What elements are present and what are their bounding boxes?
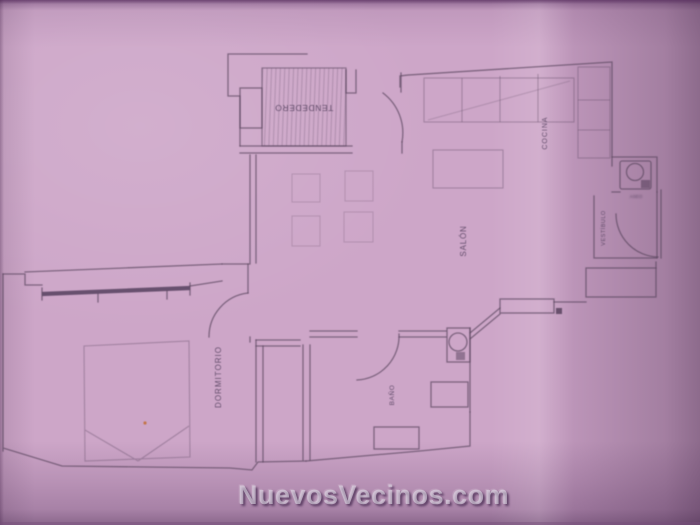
room-label-salon: SALÓN (459, 225, 468, 256)
room-label-aseo: ASEO (630, 194, 643, 199)
door-arc-icon (383, 93, 403, 142)
radiator-icon (500, 299, 554, 313)
room-tendedero: TENDEDERO (228, 54, 403, 153)
room-label-tendedero: TENDEDERO (275, 103, 334, 113)
window-icon (42, 288, 190, 294)
watermark: NuevosVecinos.com (238, 480, 498, 511)
room-aseo: ASEO (612, 157, 661, 258)
corridor (256, 340, 263, 462)
sink-icon (431, 382, 468, 407)
kitchen-island-icon (433, 150, 503, 188)
wall-mark (556, 308, 562, 314)
room-cocina: COCINA (400, 62, 612, 188)
door-arc-icon (357, 334, 399, 380)
toilet-mark (456, 352, 465, 360)
kitchen-cabinet-column-icon (578, 67, 610, 158)
stair-block (240, 88, 262, 128)
fixture-mark (641, 180, 650, 188)
photo-edge-shadow-left (0, 0, 4, 525)
room-vestibulo: VESTÍBULO (594, 196, 657, 258)
room-salon: SALÓN (222, 155, 656, 339)
room-label-bano: BAÑO (387, 385, 396, 406)
room-dormitorio: DORMITORIO (3, 264, 306, 470)
orange-speck (143, 421, 146, 424)
photo-edge-shadow-top (0, 0, 700, 4)
dining-chair-icon (345, 171, 373, 201)
bathtub-icon (374, 427, 419, 449)
floor-plan-drawing: TENDEDERO COCINA ASEO VESTÍBULO (0, 0, 700, 525)
bed-icon (84, 341, 190, 461)
dining-chair-icon (292, 174, 320, 202)
dining-chair-icon (344, 212, 373, 242)
door-arc-icon (209, 293, 248, 337)
room-label-dormitorio: DORMITORIO (214, 346, 223, 408)
door-arc-icon (616, 214, 658, 257)
dining-chair-icon (292, 216, 320, 246)
room-label-vestibulo: VESTÍBULO (600, 210, 607, 246)
window-box-icon (586, 268, 656, 297)
floor-plan-photo: TENDEDERO COCINA ASEO VESTÍBULO (0, 0, 700, 525)
room-bano: BAÑO (256, 328, 470, 461)
room-label-cocina: COCINA (542, 116, 549, 149)
